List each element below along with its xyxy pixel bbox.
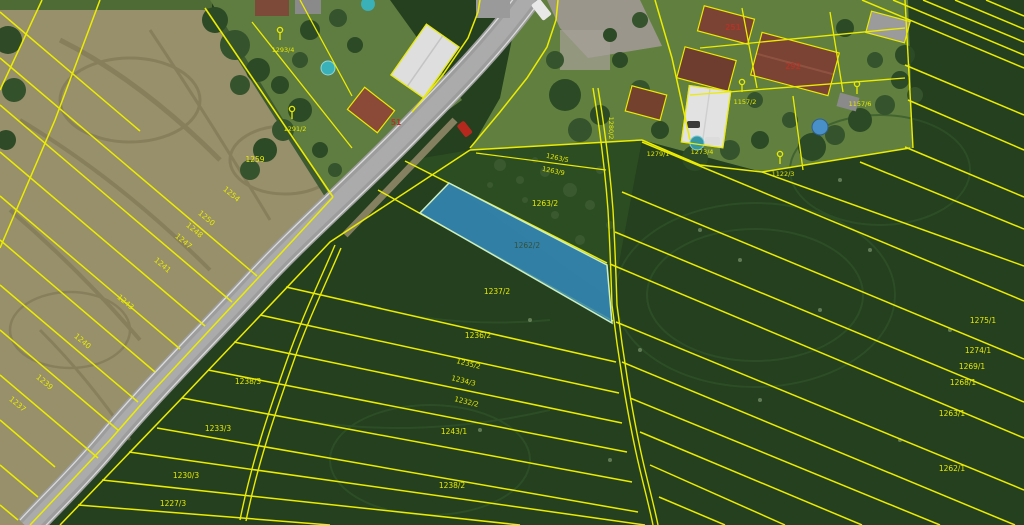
parcel-label: 1236/2	[465, 331, 492, 340]
parcel-label: 1273/4	[691, 148, 714, 156]
parcel-label: 1263/1	[939, 409, 966, 418]
house-number: 292	[785, 62, 801, 71]
parcel-label: 1274/1	[965, 346, 992, 355]
parcel-label: 1268/1	[950, 378, 977, 387]
parcel-label: 1262/1	[939, 464, 966, 473]
land-use-marker-label: 1122/3	[772, 170, 795, 178]
land-use-marker-label: 1157/2	[734, 98, 757, 106]
land-use-marker-label: 1157/6	[849, 100, 872, 108]
map-viewport[interactable]: 1259125412501248124712411243124012391237…	[0, 0, 1024, 525]
map-canvas[interactable]: 1259125412501248124712411243124012391237…	[0, 0, 1024, 525]
parcel-label: 1280/2	[607, 117, 615, 140]
house-number: 251	[725, 23, 741, 32]
parcel-label: 1238/3	[235, 377, 262, 386]
parcel-label: 1230/3	[173, 471, 200, 480]
land-use-marker-label: 1293/4	[272, 46, 295, 54]
land-use-marker-label: 1291/2	[284, 125, 307, 133]
parcel-label: 1275/1	[970, 316, 997, 325]
parcel-label: 1263/2	[532, 199, 559, 208]
house-number: 51	[391, 118, 401, 127]
parcel-label: 1279/1	[647, 150, 670, 158]
parcel-label: 1243/1	[441, 427, 468, 436]
parcel-label: 1233/3	[205, 424, 232, 433]
parcel-label: 1238/2	[439, 481, 466, 490]
parcel-label: 1259	[245, 155, 264, 164]
selected-parcel-label: 1262/2	[514, 241, 541, 250]
parcel-label: 1237/2	[484, 287, 511, 296]
parcel-label: 1227/3	[160, 499, 187, 508]
parcel-label: 1269/1	[959, 362, 986, 371]
